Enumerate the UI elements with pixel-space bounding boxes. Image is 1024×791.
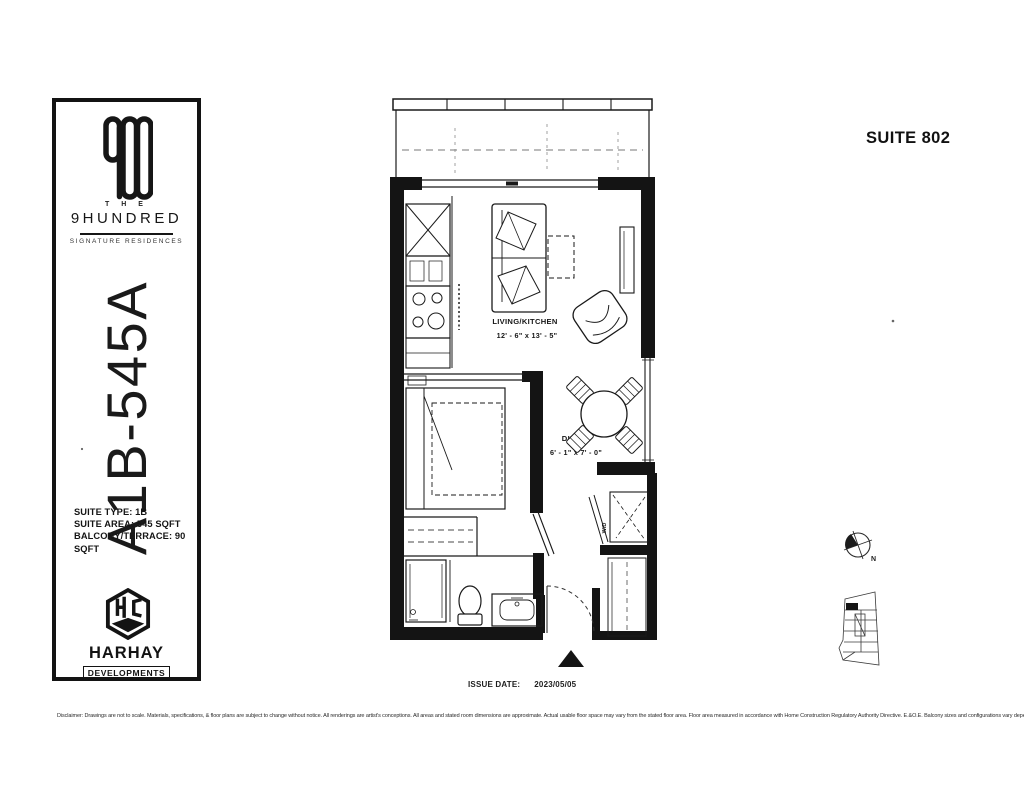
kitchen: [406, 196, 459, 368]
armchair: [569, 287, 631, 348]
bathroom: [406, 560, 542, 626]
entry-triangle-icon: [558, 650, 584, 667]
bedroom-door: [533, 512, 554, 556]
floor-plan: W/D N: [0, 0, 1024, 791]
dining-set: [566, 376, 643, 454]
bedroom-closet: [408, 530, 473, 542]
tv-console: [620, 227, 634, 293]
scanned-floorplan-page: { "header": { "suite_label": "SUITE 802"…: [0, 0, 1024, 791]
sliding-door: [422, 180, 600, 187]
north-compass-icon: N: [844, 531, 876, 563]
washer-dryer: W/D: [589, 492, 648, 544]
bed: [406, 376, 505, 509]
balcony: [393, 99, 652, 177]
north-label: N: [871, 556, 876, 563]
building-keyplan-icon: [839, 592, 879, 665]
sofa: [492, 204, 546, 312]
entry-closet: [608, 558, 646, 636]
entry-door: [547, 586, 594, 633]
wd-label: W/D: [602, 523, 608, 534]
coffee-table: [548, 236, 574, 278]
